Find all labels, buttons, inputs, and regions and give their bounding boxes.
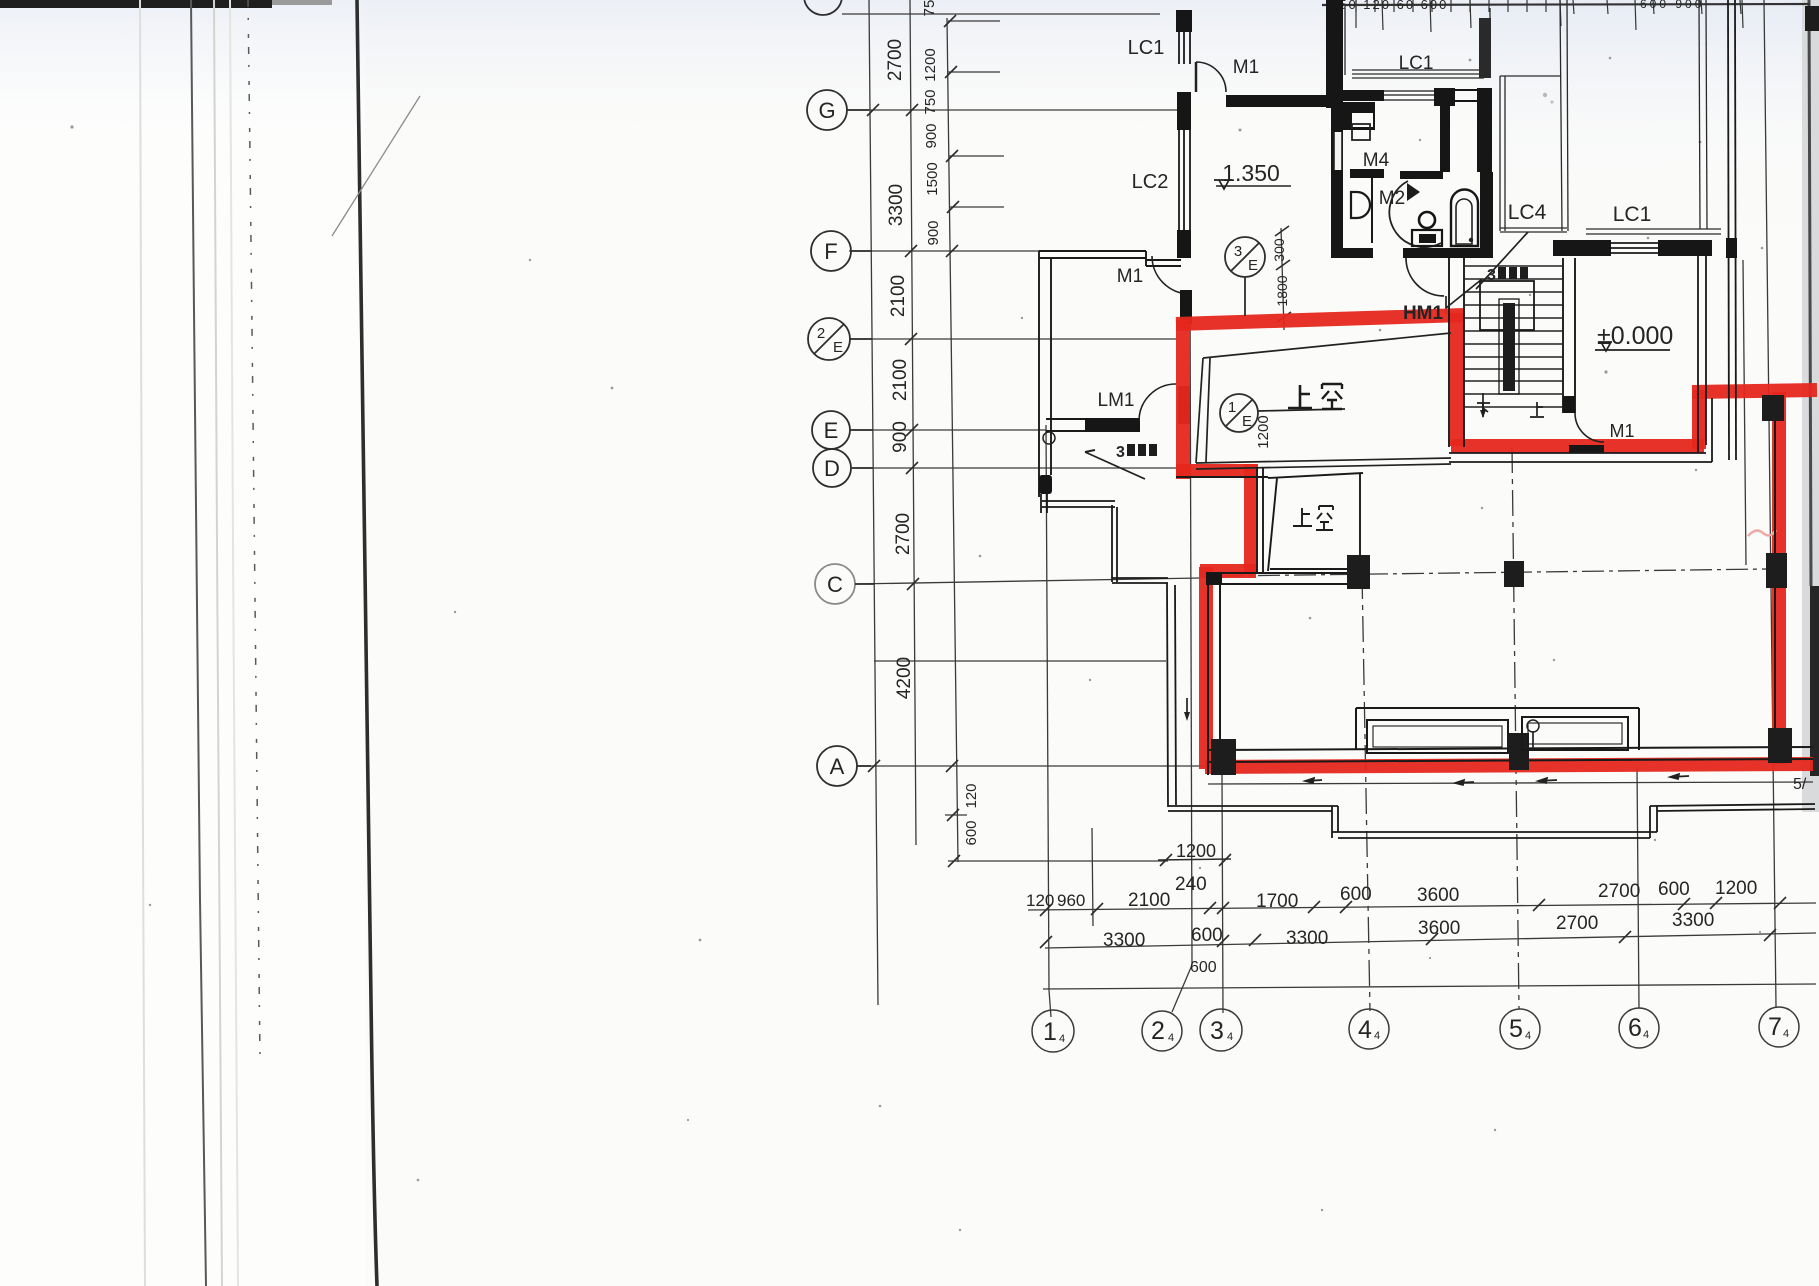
svg-text:3300: 3300 bbox=[1286, 928, 1328, 949]
svg-text:4: 4 bbox=[1168, 1032, 1174, 1044]
svg-text:300: 300 bbox=[1271, 238, 1287, 262]
svg-text:3600: 3600 bbox=[1418, 918, 1460, 939]
svg-text:5: 5 bbox=[1509, 1015, 1523, 1043]
svg-text:1200: 1200 bbox=[1715, 878, 1757, 899]
svg-text:900: 900 bbox=[925, 220, 942, 245]
svg-text:G: G bbox=[818, 98, 835, 123]
svg-text:LC1: LC1 bbox=[1399, 53, 1434, 74]
svg-text:7: 7 bbox=[1768, 1013, 1782, 1041]
svg-text:E: E bbox=[833, 339, 843, 356]
svg-text:4: 4 bbox=[1059, 1033, 1065, 1045]
svg-text:LC1: LC1 bbox=[1613, 203, 1652, 226]
svg-text:600: 600 bbox=[1340, 884, 1372, 905]
svg-text:E: E bbox=[1248, 257, 1258, 274]
svg-text:LC2: LC2 bbox=[1132, 171, 1169, 193]
svg-text:1500: 1500 bbox=[924, 162, 941, 195]
svg-text:1200: 1200 bbox=[1255, 415, 1272, 448]
svg-text:1: 1 bbox=[1043, 1018, 1057, 1046]
svg-text:2: 2 bbox=[1151, 1017, 1165, 1045]
svg-text:M1: M1 bbox=[1117, 266, 1143, 287]
svg-text:LC4: LC4 bbox=[1508, 201, 1547, 224]
svg-text:M1: M1 bbox=[1609, 421, 1634, 441]
svg-text:4: 4 bbox=[1783, 1028, 1789, 1040]
svg-text:HM1: HM1 bbox=[1403, 303, 1444, 324]
svg-text:3: 3 bbox=[1116, 444, 1125, 461]
svg-text:4200: 4200 bbox=[894, 657, 915, 699]
svg-text:2700: 2700 bbox=[1556, 913, 1598, 934]
svg-text:600: 600 bbox=[963, 820, 980, 845]
svg-text:4: 4 bbox=[1374, 1030, 1380, 1042]
svg-text:2100: 2100 bbox=[888, 275, 909, 317]
svg-text:LC1: LC1 bbox=[1128, 37, 1165, 59]
svg-text:A: A bbox=[830, 754, 845, 779]
svg-text:1800: 1800 bbox=[1274, 275, 1290, 306]
svg-text:600: 600 bbox=[1658, 879, 1690, 900]
svg-text:E: E bbox=[824, 418, 839, 443]
svg-text:120: 120 bbox=[963, 783, 980, 808]
svg-text:2700: 2700 bbox=[885, 39, 906, 81]
svg-text:1700: 1700 bbox=[1256, 891, 1298, 912]
svg-text:6: 6 bbox=[1628, 1014, 1642, 1042]
svg-text:4: 4 bbox=[1358, 1016, 1372, 1044]
svg-text:2: 2 bbox=[817, 325, 825, 342]
svg-text:LM1: LM1 bbox=[1098, 390, 1135, 411]
svg-text:C: C bbox=[827, 572, 843, 597]
svg-text:120: 120 bbox=[1026, 891, 1054, 910]
svg-text:1200: 1200 bbox=[922, 48, 939, 81]
svg-text:600 900: 600 900 bbox=[1640, 0, 1704, 11]
svg-text:M2: M2 bbox=[1379, 188, 1405, 209]
svg-text:3300: 3300 bbox=[1103, 930, 1145, 951]
svg-text:M4: M4 bbox=[1363, 150, 1390, 171]
svg-text:900: 900 bbox=[890, 421, 911, 453]
svg-text:3300: 3300 bbox=[886, 184, 907, 226]
svg-text:4: 4 bbox=[1643, 1029, 1649, 1041]
svg-text:4: 4 bbox=[1227, 1031, 1233, 1043]
svg-text:3: 3 bbox=[1234, 243, 1242, 260]
svg-text:3300: 3300 bbox=[1672, 910, 1714, 931]
svg-text:5/: 5/ bbox=[1793, 776, 1807, 793]
svg-text:3600: 3600 bbox=[1417, 885, 1459, 906]
svg-text:600: 600 bbox=[1191, 925, 1223, 946]
svg-text:1: 1 bbox=[1228, 399, 1236, 416]
svg-text:2700: 2700 bbox=[1598, 881, 1640, 902]
svg-text:1.350: 1.350 bbox=[1222, 160, 1280, 186]
svg-text:F: F bbox=[824, 239, 837, 264]
svg-text:960: 960 bbox=[1057, 891, 1085, 910]
svg-text:900: 900 bbox=[923, 123, 940, 148]
svg-text:2100: 2100 bbox=[890, 359, 911, 401]
svg-text:2100: 2100 bbox=[1128, 890, 1170, 911]
svg-text:M1: M1 bbox=[1233, 57, 1259, 78]
svg-text:1200: 1200 bbox=[1176, 841, 1216, 861]
svg-text:600: 600 bbox=[1190, 959, 1217, 976]
svg-text:75: 75 bbox=[921, 0, 938, 16]
svg-text:2700: 2700 bbox=[893, 513, 914, 555]
svg-text:3: 3 bbox=[1487, 267, 1496, 284]
svg-text:D: D bbox=[824, 456, 840, 481]
svg-text:650 120 60 600: 650 120 60 600 bbox=[1330, 0, 1448, 12]
svg-text:4: 4 bbox=[1525, 1030, 1531, 1042]
svg-text:E: E bbox=[1242, 413, 1252, 430]
svg-text:3: 3 bbox=[1210, 1017, 1224, 1045]
svg-text:750: 750 bbox=[922, 89, 939, 114]
svg-text:240: 240 bbox=[1175, 874, 1207, 895]
